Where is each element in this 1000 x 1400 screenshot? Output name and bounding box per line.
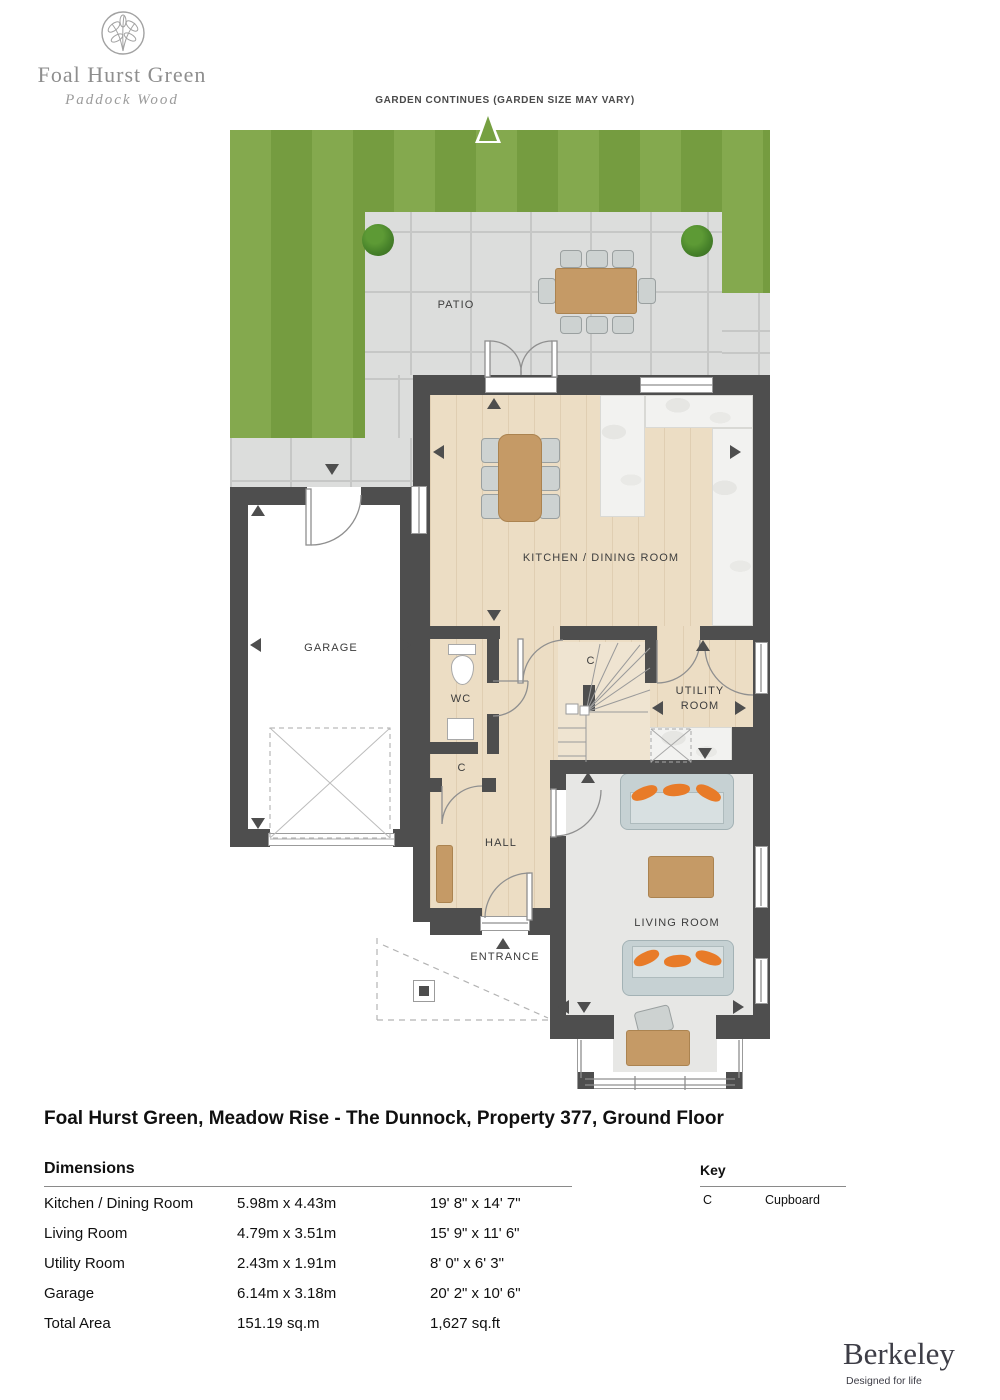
- kitchen-window: [640, 377, 713, 393]
- dining-table: [498, 434, 542, 522]
- garden-lawn: [230, 130, 770, 212]
- patio-chair: [586, 250, 608, 268]
- bay-post: [726, 1072, 742, 1089]
- patio-chair: [560, 250, 582, 268]
- dimension-row-room: Garage: [44, 1285, 94, 1302]
- patio-chair: [538, 278, 556, 304]
- dimension-row-room: Utility Room: [44, 1255, 125, 1272]
- page-title: Foal Hurst Green, Meadow Rise - The Dunn…: [44, 1108, 944, 1130]
- kitchen-floor: [430, 395, 753, 626]
- wall-segment: [430, 742, 478, 754]
- wall-segment: [550, 836, 566, 1022]
- kitchen-worktop: [645, 395, 753, 428]
- hall-label: HALL: [485, 837, 517, 849]
- dimensions-rule: [44, 1186, 572, 1187]
- staircase: [558, 642, 650, 763]
- key-symbol-label: Cupboard: [765, 1193, 820, 1207]
- measure-arrow-right: [733, 1000, 744, 1014]
- dimension-row-room: Total Area: [44, 1315, 111, 1332]
- wall-segment: [430, 908, 482, 935]
- coffee-table: [648, 856, 714, 898]
- measure-arrow-left: [433, 445, 444, 459]
- measure-arrow-up: [487, 398, 501, 409]
- wall-segment: [487, 714, 499, 754]
- entrance-label: ENTRANCE: [470, 951, 539, 963]
- garden-note: GARDEN CONTINUES (GARDEN SIZE MAY VARY): [300, 95, 710, 106]
- wall-segment: [487, 626, 499, 683]
- dimension-row-imperial: 15' 9" x 11' 6": [430, 1225, 520, 1242]
- builder-logo: Berkeley: [843, 1336, 955, 1372]
- measure-arrow-up: [251, 505, 265, 516]
- wall-segment: [400, 487, 430, 847]
- living-room-label: LIVING ROOM: [634, 917, 719, 929]
- measure-arrow-down: [251, 818, 265, 829]
- dining-chair: [539, 466, 560, 491]
- dimension-row-metric: 6.14m x 3.18m: [237, 1285, 336, 1302]
- measure-arrow-up: [581, 772, 595, 783]
- measure-arrow-right: [735, 701, 746, 715]
- development-name: Foal Hurst Green: [22, 62, 222, 88]
- dimension-row-metric: 5.98m x 4.43m: [237, 1195, 336, 1212]
- dimension-row-metric: 151.19 sq.m: [237, 1315, 320, 1332]
- key-rule: [700, 1186, 846, 1187]
- measure-arrow-left: [558, 1000, 569, 1014]
- sofa: [622, 940, 734, 996]
- garage-door: [268, 833, 395, 846]
- wall-segment: [413, 847, 430, 922]
- living-room-window: [755, 846, 768, 908]
- measure-arrow-up: [496, 938, 510, 949]
- garden-lawn-right: [722, 212, 770, 293]
- measure-arrow-right: [400, 638, 411, 652]
- development-logo-tree-icon: [99, 9, 147, 57]
- bay-post: [578, 1072, 594, 1089]
- basin-icon: [447, 718, 474, 740]
- dimension-row-imperial: 8' 0" x 6' 3": [430, 1255, 504, 1272]
- garage-label: GARAGE: [304, 642, 358, 654]
- measure-arrow-left: [652, 701, 663, 715]
- patio-area-side: [365, 375, 413, 445]
- garden-lawn-left: [230, 212, 365, 440]
- dimensions-heading: Dimensions: [44, 1160, 135, 1178]
- dining-chair: [539, 438, 560, 463]
- utility-label-1: UTILITY: [676, 685, 725, 697]
- patio-chair: [612, 316, 634, 334]
- dimension-row-metric: 4.79m x 3.51m: [237, 1225, 336, 1242]
- patio-label: PATIO: [438, 299, 475, 311]
- cupboard-label: C: [586, 655, 595, 667]
- dimension-row-imperial: 20' 2" x 10' 6": [430, 1285, 521, 1302]
- wall-segment: [732, 727, 757, 767]
- measure-arrow-down: [698, 748, 712, 759]
- dimension-row-imperial: 1,627 sq.ft: [430, 1315, 500, 1332]
- cupboard-label: C: [457, 762, 466, 774]
- wc-label: WC: [451, 693, 472, 705]
- utility-worktop: [648, 727, 732, 763]
- wall-segment: [583, 685, 595, 711]
- dimension-row-imperial: 19' 8" x 14' 7": [430, 1195, 521, 1212]
- bush-icon: [362, 224, 394, 256]
- dimension-row-room: Kitchen / Dining Room: [44, 1195, 193, 1212]
- living-room-window: [755, 958, 768, 1004]
- patio-chair: [586, 316, 608, 334]
- wall-segment: [716, 1015, 770, 1039]
- utility-label-2: ROOM: [681, 700, 720, 712]
- measure-arrow-down: [325, 464, 339, 475]
- wall-segment: [753, 395, 770, 626]
- development-location: Paddock Wood: [22, 92, 222, 109]
- wall-segment: [560, 626, 645, 640]
- wall-segment: [413, 375, 770, 395]
- wall-segment: [230, 829, 270, 847]
- wall-segment: [553, 760, 645, 774]
- patio-chair: [612, 250, 634, 268]
- dimension-row-metric: 2.43m x 1.91m: [237, 1255, 336, 1272]
- dining-chair: [539, 494, 560, 519]
- key-symbol: C: [703, 1193, 712, 1207]
- measure-arrow-right: [730, 445, 741, 459]
- desk: [626, 1030, 690, 1066]
- patio-chair: [560, 316, 582, 334]
- toilet-cistern: [448, 644, 476, 655]
- measure-arrow-down: [577, 1002, 591, 1013]
- hall-console: [436, 845, 453, 903]
- kitchen-worktop: [600, 395, 645, 517]
- wall-segment: [230, 505, 248, 835]
- french-doors: [485, 377, 557, 393]
- floorplan-page: Foal Hurst Green Paddock Wood GARDEN CON…: [0, 0, 1000, 1400]
- patio-table: [555, 268, 637, 314]
- entrance-door-threshold: [480, 916, 530, 931]
- bush-icon: [681, 225, 713, 257]
- builder-tagline: Designed for life: [846, 1375, 922, 1387]
- porch-post-core: [419, 986, 429, 996]
- measure-arrow-left: [250, 638, 261, 652]
- patio-area-right: [722, 293, 770, 375]
- measure-arrow-down: [487, 610, 501, 621]
- measure-arrow-up: [696, 640, 710, 651]
- key-heading: Key: [700, 1162, 726, 1178]
- wall-segment: [482, 778, 496, 792]
- kitchen-label: KITCHEN / DINING ROOM: [523, 552, 679, 564]
- utility-door-window: [755, 642, 768, 694]
- dimension-row-room: Living Room: [44, 1225, 127, 1242]
- kitchen-side-window: [411, 486, 427, 534]
- wall-segment: [430, 778, 442, 792]
- wall-segment: [550, 1015, 614, 1039]
- wall-segment: [645, 626, 657, 683]
- patio-chair: [638, 278, 656, 304]
- garage-door-opening: [307, 487, 361, 505]
